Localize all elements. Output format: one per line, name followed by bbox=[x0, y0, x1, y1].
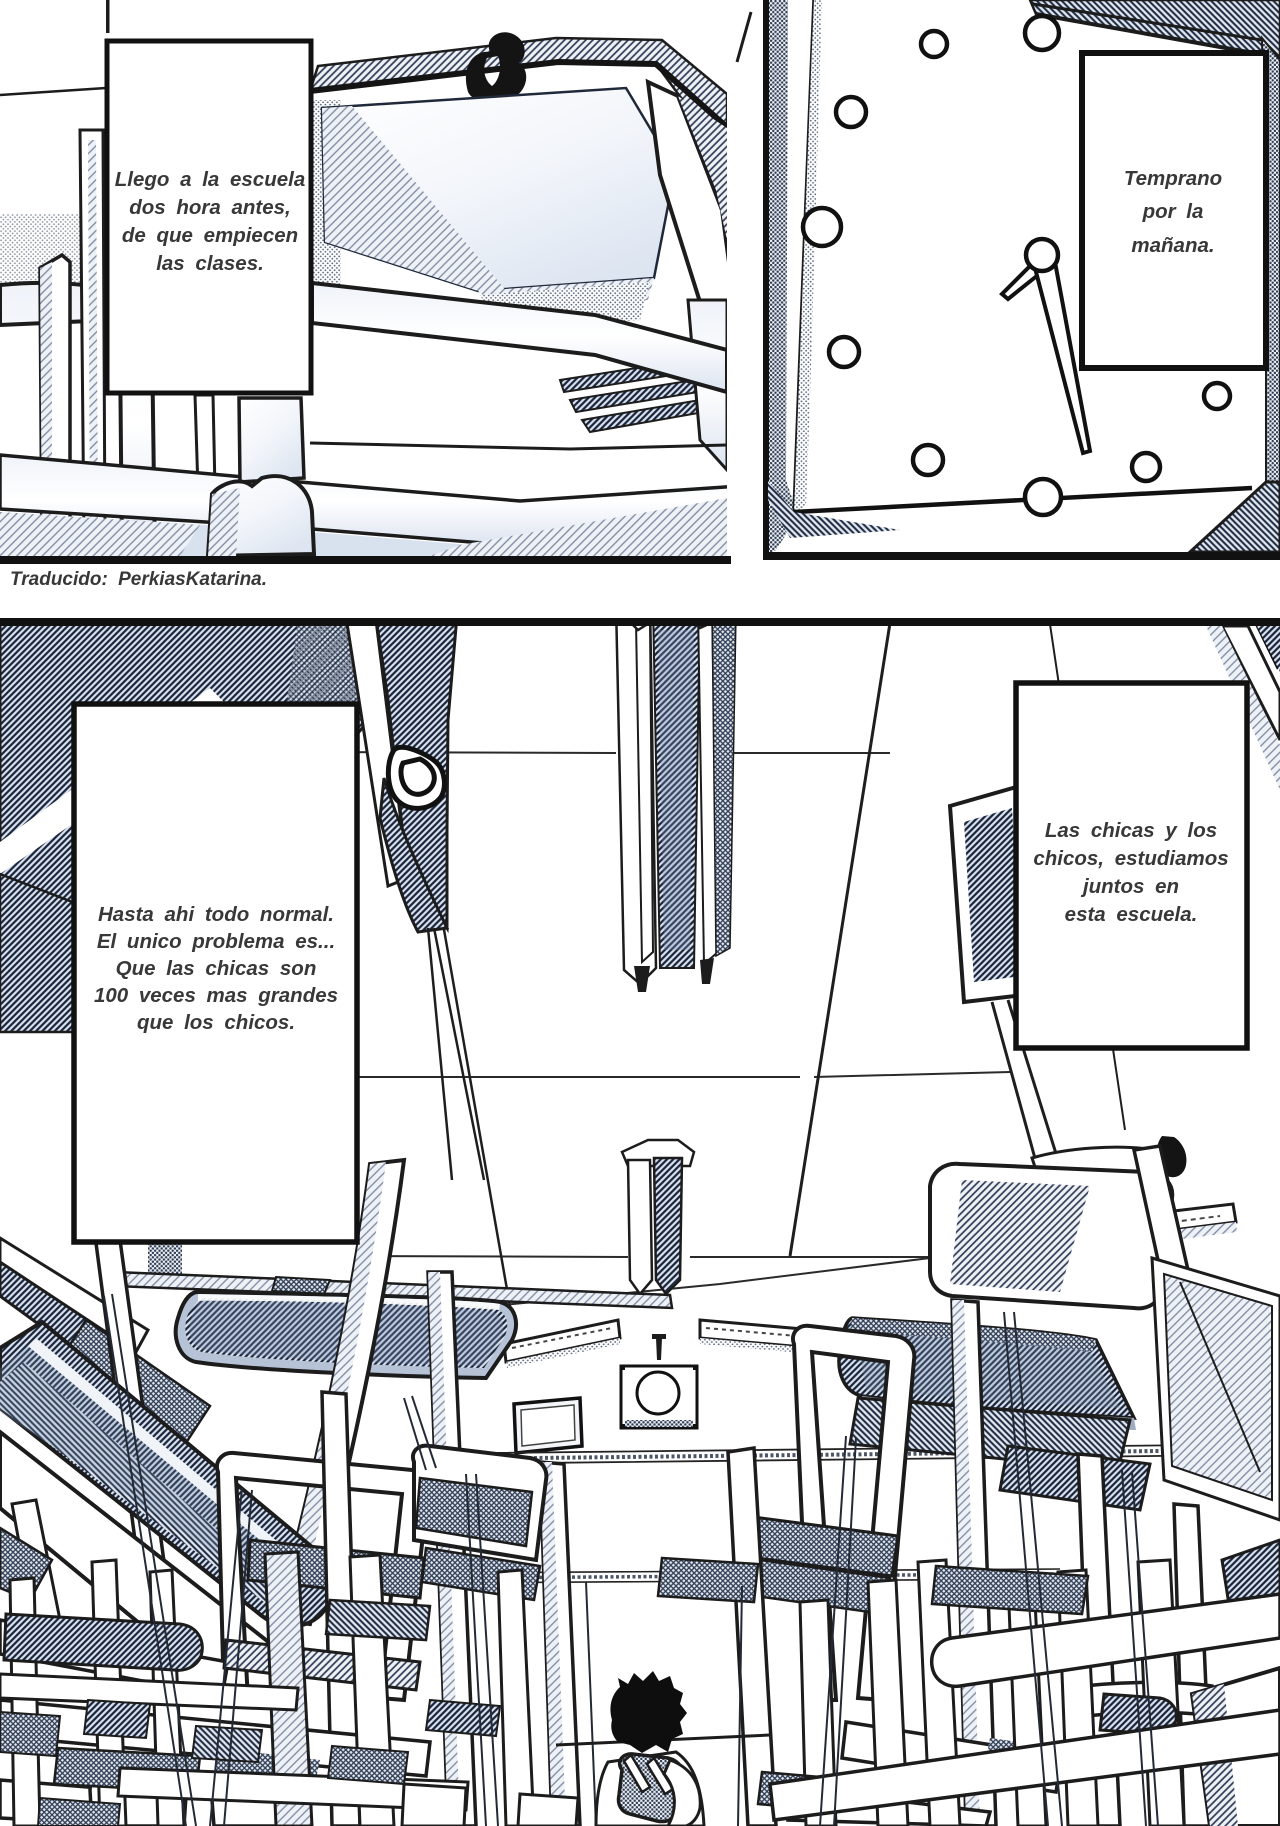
svg-text:El unico problema es...: El unico problema es... bbox=[97, 930, 335, 953]
svg-text:por la: por la bbox=[1142, 200, 1204, 223]
svg-text:las clases.: las clases. bbox=[156, 252, 264, 275]
svg-text:mañana.: mañana. bbox=[1131, 234, 1214, 257]
svg-text:Hasta ahi todo normal.: Hasta ahi todo normal. bbox=[98, 903, 334, 926]
svg-text:100 veces mas grandes: 100 veces mas grandes bbox=[94, 984, 338, 1007]
svg-text:Temprano: Temprano bbox=[1124, 167, 1222, 190]
svg-text:Las chicas y los: Las chicas y los bbox=[1045, 819, 1217, 842]
svg-text:dos hora antes,: dos hora antes, bbox=[129, 196, 291, 219]
svg-text:esta escuela.: esta escuela. bbox=[1065, 903, 1198, 926]
svg-text:Llego a la escuela: Llego a la escuela bbox=[115, 168, 305, 191]
svg-text:Que las chicas son: Que las chicas son bbox=[116, 957, 317, 980]
svg-text:de que empiecen: de que empiecen bbox=[122, 224, 298, 247]
svg-text:que los chicos.: que los chicos. bbox=[137, 1011, 295, 1034]
svg-text:chicos, estudiamos: chicos, estudiamos bbox=[1033, 847, 1228, 870]
svg-text:Traducido: PerkiasKatarina.: Traducido: PerkiasKatarina. bbox=[10, 569, 267, 590]
svg-text:juntos en: juntos en bbox=[1080, 875, 1179, 898]
